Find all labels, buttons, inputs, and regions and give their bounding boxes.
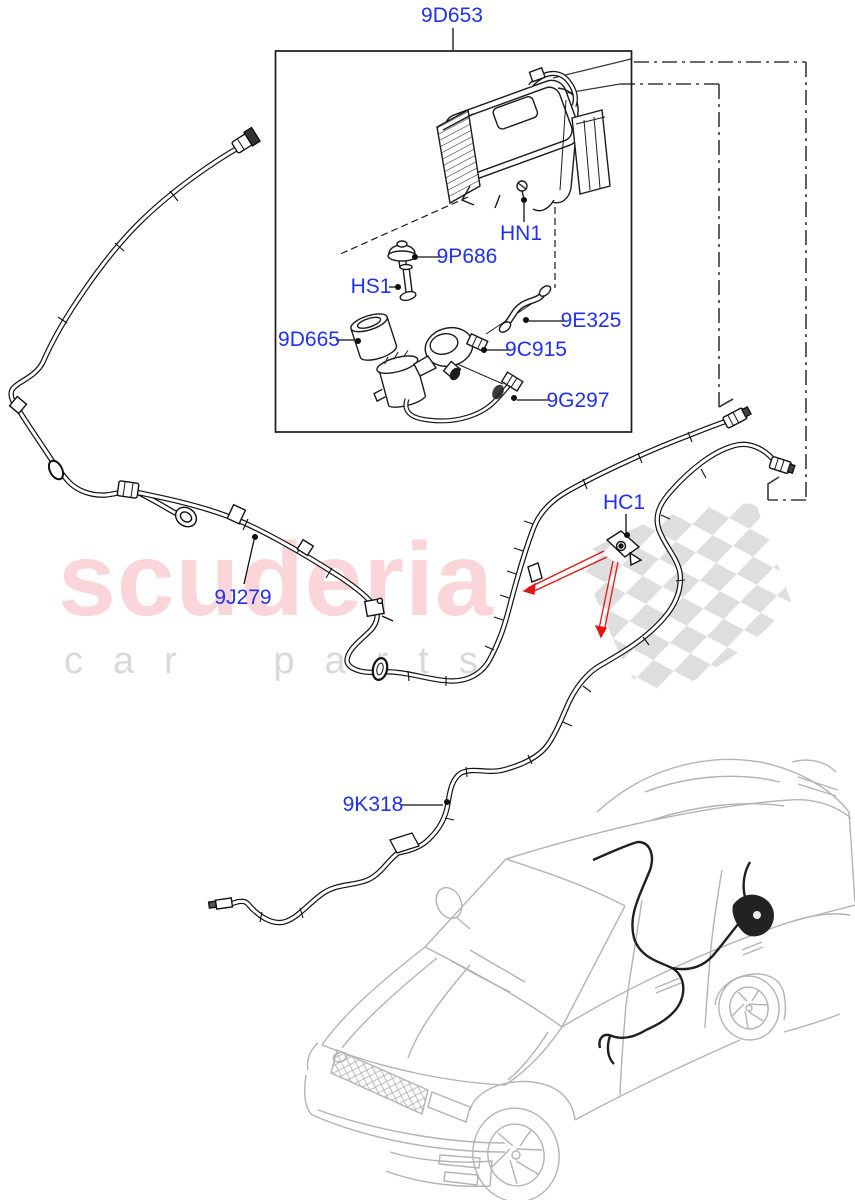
checkered-flag xyxy=(580,504,791,691)
part-label-9d653[interactable]: 9D653 xyxy=(421,4,483,28)
parts-diagram-page: scuderia car parts xyxy=(0,0,855,1200)
part-label-hn1[interactable]: HN1 xyxy=(500,222,542,246)
vehicle-sketch xyxy=(305,759,855,1200)
part-label-9c915[interactable]: 9C915 xyxy=(505,338,567,362)
part-label-9g297[interactable]: 9G297 xyxy=(546,389,609,413)
part-label-9p686[interactable]: 9P686 xyxy=(437,245,498,269)
part-label-9d665[interactable]: 9D665 xyxy=(278,328,340,352)
part-label-hc1[interactable]: HC1 xyxy=(603,491,645,515)
part-label-9j279[interactable]: 9J279 xyxy=(214,586,271,610)
part-label-9k318[interactable]: 9K318 xyxy=(343,793,404,817)
part-label-hs1[interactable]: HS1 xyxy=(351,275,392,299)
diagram-artwork xyxy=(0,0,855,1200)
part-label-9e325[interactable]: 9E325 xyxy=(561,309,622,333)
